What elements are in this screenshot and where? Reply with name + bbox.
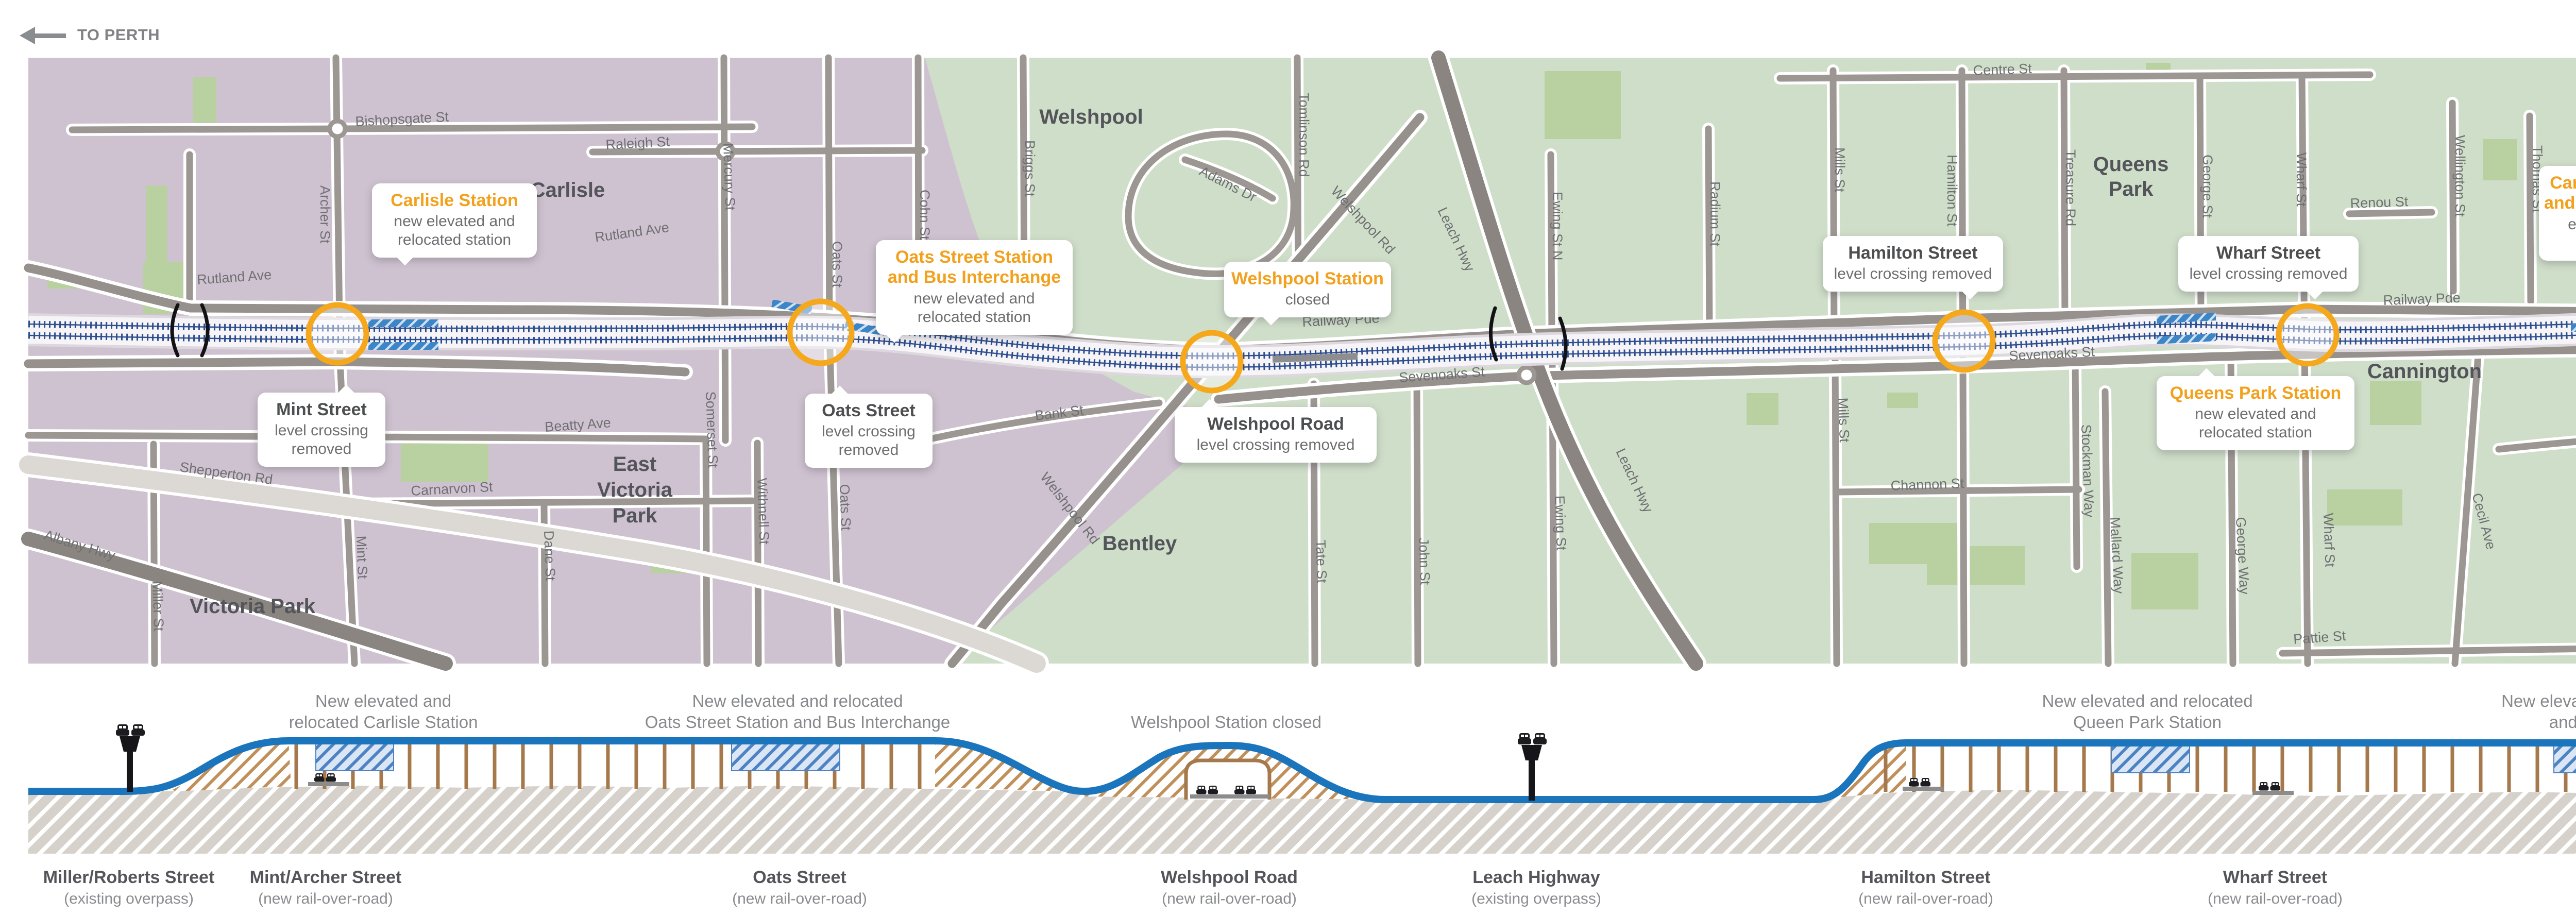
callout-queens-park-station: Queens Park Stationnew elevated andreloc… bbox=[2157, 376, 2354, 450]
street-name: Wharf Street bbox=[2208, 868, 2343, 888]
street-subtitle: (existing overpass) bbox=[1471, 890, 1601, 908]
street-label: Mills St bbox=[1832, 147, 1848, 192]
callout-oats-street-station: Oats Street Stationand Bus Interchangene… bbox=[876, 240, 1073, 335]
street-label: Archer St bbox=[317, 185, 333, 244]
street-label: Mills St bbox=[1835, 397, 1852, 443]
callout-body: new elevated andrelocated station bbox=[2162, 405, 2349, 442]
callout-body: level crossing removed bbox=[1828, 265, 1998, 283]
profile-platforms bbox=[316, 744, 2576, 794]
callout-mint-street: Mint Streetlevel crossingremoved bbox=[258, 393, 385, 467]
street-label: Wharf St bbox=[2294, 152, 2309, 207]
callout-body: level crossingremoved bbox=[810, 422, 927, 460]
profile-label: New elevated and relocatedOats Street St… bbox=[645, 688, 951, 733]
profile-label: New elevated Cannington Stationand Bus I… bbox=[2501, 688, 2576, 733]
suburb-label: Park bbox=[2109, 178, 2154, 200]
callout-title: Mint Street bbox=[263, 400, 380, 420]
street-subtitle: (new rail-over-road) bbox=[1858, 890, 1993, 908]
callout-title: Wharf Street bbox=[2183, 243, 2353, 263]
callout-title: Cannington Stationand Bus Interchange bbox=[2544, 173, 2576, 214]
callout-title: Hamilton Street bbox=[1828, 243, 1998, 263]
map-area: Bishopsgate StArcher StRutland AveRutlan… bbox=[28, 58, 2576, 664]
profile-street-label: Hamilton Street(new rail-over-road) bbox=[1858, 868, 1993, 908]
profile-label: New elevated andrelocated Carlisle Stati… bbox=[289, 688, 478, 733]
street-label: Cohn St bbox=[917, 190, 933, 240]
suburb-label: Park bbox=[613, 504, 657, 527]
callout-body: level crossing removed bbox=[2183, 265, 2353, 283]
street-label: Dane St bbox=[541, 530, 558, 581]
callout-body: level crossing removed bbox=[1180, 436, 1371, 454]
street-name: Welshpool Road bbox=[1161, 868, 1298, 888]
callout-title: Carlisle Station bbox=[377, 191, 532, 211]
street-subtitle: (new rail-over-road) bbox=[2208, 890, 2343, 908]
street-label: Radium St bbox=[1707, 181, 1723, 247]
street-label: Centre St bbox=[1973, 61, 2032, 78]
overpass-icon-miller-roberts bbox=[116, 724, 145, 792]
street-name: Mint/Archer Street bbox=[250, 868, 402, 888]
suburb-label: Victoria bbox=[597, 479, 673, 501]
to-perth-label: TO PERTH bbox=[77, 26, 160, 44]
callout-cannington-station: Cannington Stationand Bus Interchangeele… bbox=[2539, 166, 2576, 261]
profile-label: New elevated and relocatedQueen Park Sta… bbox=[2042, 688, 2252, 733]
callout-body: new elevated andrelocated station bbox=[881, 290, 1067, 327]
profile-street-label: Leach Highway(existing overpass) bbox=[1471, 868, 1601, 908]
callout-body: new elevated andrelocated station bbox=[377, 212, 532, 249]
cars-hamilton bbox=[1903, 778, 1944, 791]
callout-welshpool-road: Welshpool Roadlevel crossing removed bbox=[1175, 407, 1377, 463]
suburb-label: Bentley bbox=[1103, 532, 1177, 555]
profile-street-label: Oats Street(new rail-over-road) bbox=[732, 868, 867, 908]
suburb-label: Victoria Park bbox=[190, 595, 316, 618]
street-label: Railway Pde bbox=[2383, 290, 2461, 308]
street-subtitle: (new rail-over-road) bbox=[250, 890, 402, 908]
callout-body: elevated station atexisting location bbox=[2544, 215, 2576, 252]
suburb-label: Cannington bbox=[2367, 360, 2482, 383]
callout-welshpool-station: Welshpool Stationclosed bbox=[1224, 262, 1391, 317]
street-label: Mint St bbox=[353, 535, 370, 580]
cars-mint-archer bbox=[308, 773, 349, 786]
street-label: Hamilton St bbox=[1944, 155, 1960, 227]
street-label: Wellington St bbox=[2452, 135, 2468, 217]
street-label: George St bbox=[2200, 155, 2215, 218]
street-label: Withnell St bbox=[754, 478, 772, 545]
street-label: Renou St bbox=[2350, 194, 2409, 211]
street-subtitle: (existing overpass) bbox=[43, 890, 215, 908]
street-label: Oats St bbox=[829, 241, 845, 288]
street-label: John St bbox=[1416, 537, 1433, 585]
street-name: Hamilton Street bbox=[1858, 868, 1993, 888]
callout-title: Oats Street Stationand Bus Interchange bbox=[881, 247, 1067, 288]
callout-wharf-street: Wharf Streetlevel crossing removed bbox=[2178, 236, 2359, 292]
profile-street-label: Mint/Archer Street(new rail-over-road) bbox=[250, 868, 402, 908]
profile-street-label: Miller/Roberts Street(existing overpass) bbox=[43, 868, 215, 908]
arrow-left-icon bbox=[20, 27, 67, 44]
street-name: Leach Highway bbox=[1471, 868, 1601, 888]
suburb-label: Welshpool bbox=[1039, 106, 1143, 128]
profile-street-label: Welshpool Road(new rail-over-road) bbox=[1161, 868, 1298, 908]
elevation-profile bbox=[28, 724, 2576, 857]
callout-title: Oats Street bbox=[810, 401, 927, 421]
street-label: Ewing St N bbox=[1550, 192, 1565, 261]
street-label: Mercury St bbox=[720, 143, 738, 211]
street-name: Miller/Roberts Street bbox=[43, 868, 215, 888]
street-subtitle: (new rail-over-road) bbox=[1161, 890, 1298, 908]
callout-body: level crossingremoved bbox=[263, 421, 380, 459]
street-label: Channon St bbox=[1890, 476, 1964, 494]
street-label: Miller St bbox=[149, 581, 166, 632]
street-label: Tate St bbox=[1313, 539, 1330, 584]
cars-wharf bbox=[2252, 782, 2294, 795]
suburb-label: East bbox=[613, 453, 657, 476]
level-crossing-removal-map: Bishopsgate StArcher StRutland AveRutlan… bbox=[0, 0, 2576, 916]
viaduct-piers bbox=[296, 744, 2576, 794]
street-label: Ewing St bbox=[1552, 495, 1569, 551]
callout-hamilton-street: Hamilton Streetlevel crossing removed bbox=[1823, 236, 2003, 292]
street-label: Somerset St bbox=[703, 391, 721, 468]
callout-carlisle-station: Carlisle Stationnew elevated andrelocate… bbox=[372, 183, 537, 258]
suburb-label: Carlisle bbox=[531, 179, 605, 201]
suburb-label: Queens bbox=[2093, 153, 2169, 176]
street-label: Stockman Way bbox=[2078, 424, 2097, 518]
street-label: Briggs St bbox=[1022, 140, 1038, 197]
callout-title: Welshpool Station bbox=[1229, 269, 1386, 289]
callout-body: closed bbox=[1229, 291, 1386, 309]
profile-label: Welshpool Station closed bbox=[1131, 688, 1321, 733]
street-subtitle: (new rail-over-road) bbox=[732, 890, 867, 908]
street-name: Oats Street bbox=[732, 868, 867, 888]
street-label: Wharf St bbox=[2320, 513, 2338, 568]
overpass-icon-leach-highway bbox=[1518, 733, 1547, 801]
street-label: Oats St bbox=[837, 484, 854, 531]
callout-oats-street: Oats Streetlevel crossingremoved bbox=[805, 394, 933, 468]
callout-title: Queens Park Station bbox=[2162, 383, 2349, 403]
street-label: Tomlinson Rd bbox=[1296, 93, 1312, 177]
street-label: Treasure Rd bbox=[2063, 149, 2078, 226]
profile-street-label: Wharf Street(new rail-over-road) bbox=[2208, 868, 2343, 908]
